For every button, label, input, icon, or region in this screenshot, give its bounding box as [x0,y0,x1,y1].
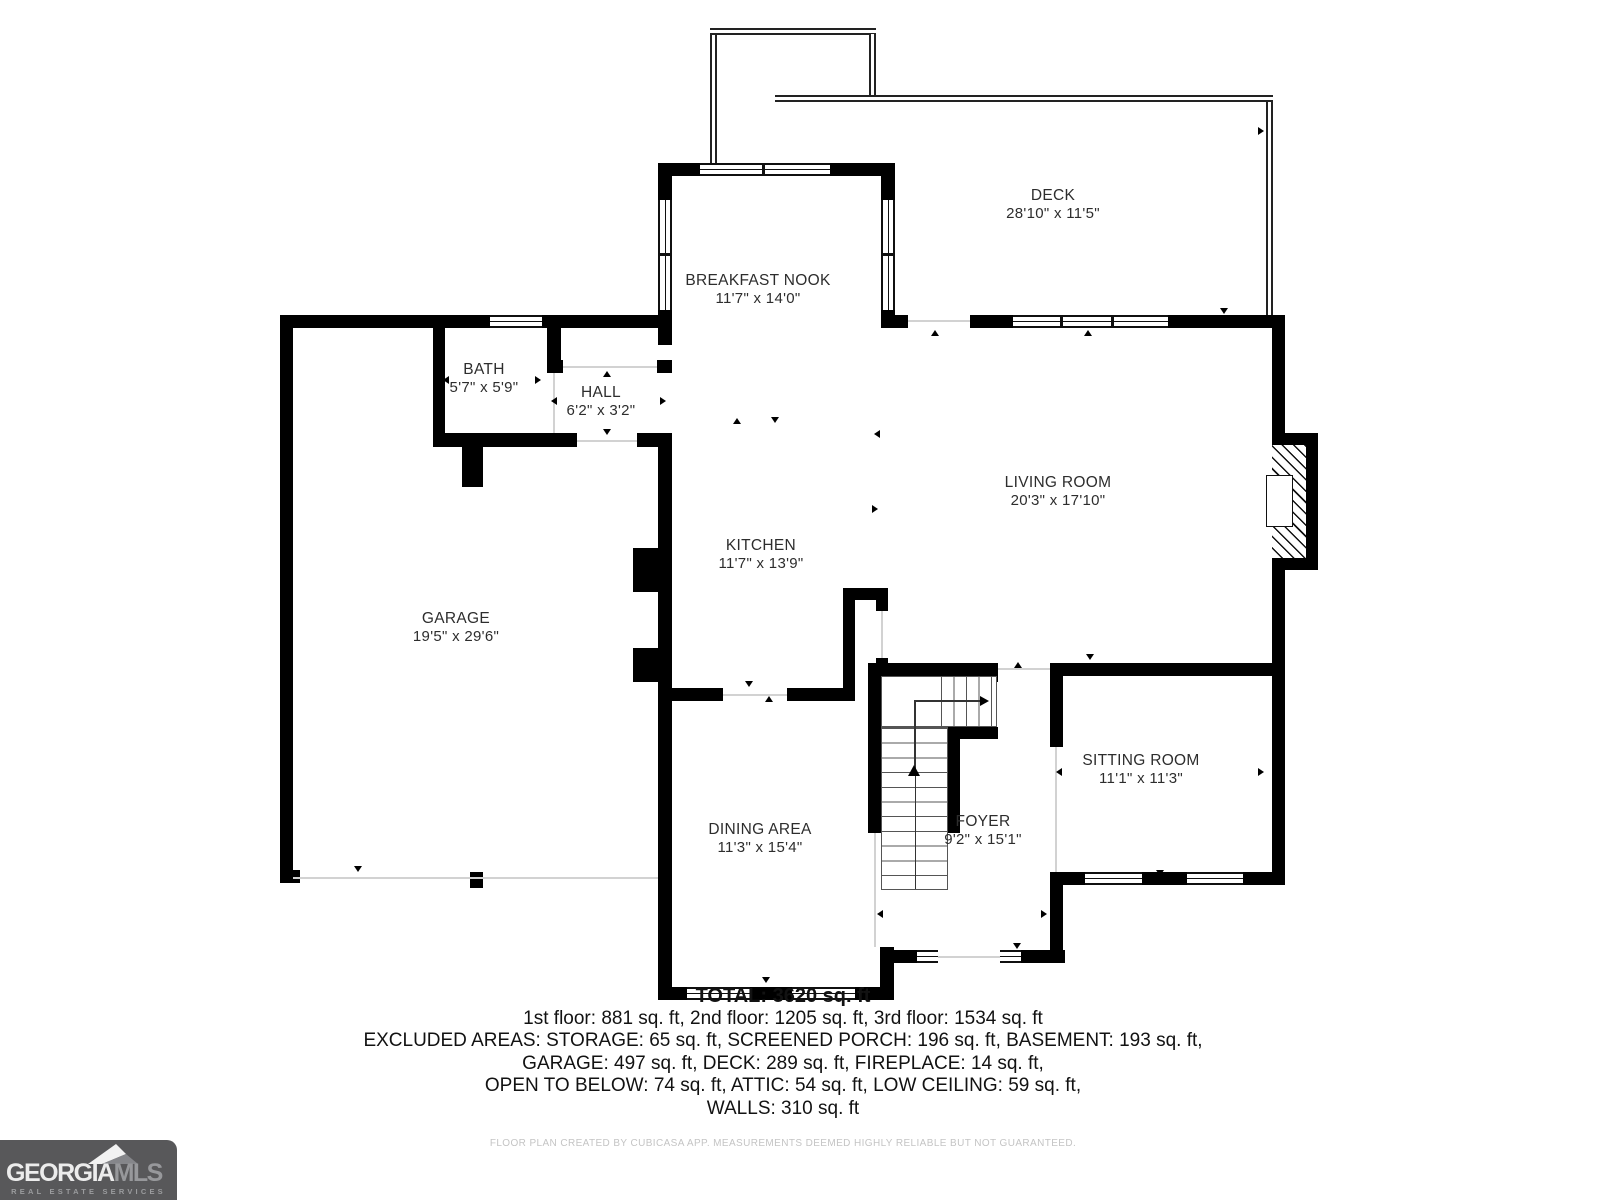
room-label-hall: HALL 6'2" x 3'2" [567,384,636,420]
room-label-living-room: LIVING ROOM 20'3" x 17'10" [1005,474,1112,510]
cased-opening [563,366,657,368]
window-mullion [1060,315,1063,328]
door-opening [577,440,637,442]
wall [1272,570,1285,676]
opening-marker [443,376,449,384]
room-name: SITTING ROOM [1082,752,1199,770]
total-area: TOTAL: 3620 sq. ft [0,984,1566,1008]
excluded-areas-line: OPEN TO BELOW: 74 sq. ft, ATTIC: 54 sq. … [0,1075,1566,1097]
georgia-mls-logo: GEORGIAMLS REAL ESTATE SERVICES [0,1140,177,1200]
cased-opening [874,833,876,947]
wall [280,315,672,328]
excluded-areas-line: GARAGE: 497 sq. ft, DECK: 289 sq. ft, FI… [0,1053,1566,1075]
opening-marker [283,675,289,683]
opening-marker [1014,662,1022,668]
window-mullion [1111,315,1114,328]
opening-marker [354,866,362,872]
room-dims: 20'3" x 17'10" [1005,492,1112,510]
utility-block [633,548,660,592]
room-name: LIVING ROOM [1005,474,1112,492]
room-dims: 11'7" x 14'0" [685,290,830,308]
wall [462,447,483,487]
cased-opening [998,668,1050,670]
room-dims: 9'2" x 15'1" [944,831,1022,849]
utility-block [633,648,660,682]
floor-areas: 1st floor: 881 sq. ft, 2nd floor: 1205 s… [0,1008,1566,1030]
opening-marker [762,977,770,983]
wall [868,663,998,676]
window-mullion [658,253,672,256]
window [1187,872,1243,885]
stair-direction-line [914,700,980,702]
excluded-areas-line: WALLS: 310 sq. ft [0,1098,1566,1120]
opening-marker [1155,666,1163,672]
opening-marker [771,417,779,423]
window [1085,872,1142,885]
opening-marker [874,430,880,438]
cased-opening [1055,747,1057,872]
room-dims: 5'7" x 5'9" [450,379,519,397]
room-dims: 11'3" x 15'4" [708,839,811,857]
opening-marker [1258,768,1264,776]
opening-marker [1056,768,1062,776]
wall [549,360,563,373]
opening-marker [603,429,611,435]
room-dims: 19'5" x 29'6" [413,628,499,646]
opening-marker [660,397,666,405]
wall [1272,328,1285,435]
fireplace-firebox [1266,475,1293,527]
logo-brand-primary: GEORGIA [6,1159,114,1187]
stair-arrow-icon [980,696,989,706]
room-name: DECK [1006,187,1100,205]
room-label-breakfast-nook: BREAKFAST NOOK 11'7" x 14'0" [685,272,830,308]
wall [843,588,855,700]
wall [1272,676,1285,883]
opening-marker [931,330,939,336]
room-label-foyer: FOYER 9'2" x 15'1" [944,813,1022,849]
opening-marker [1258,127,1264,135]
wall [470,872,483,888]
floor-plan: DECK 28'10" x 11'5" BREAKFAST NOOK 11'7"… [0,0,1600,1200]
deck-rail [775,95,1273,102]
room-label-sitting-room: SITTING ROOM 11'1" x 11'3" [1082,752,1199,788]
room-label-kitchen: KITCHEN 11'7" x 13'9" [718,537,803,573]
logo-tagline: REAL ESTATE SERVICES [0,1187,177,1196]
wall [881,315,908,328]
disclaimer-text: FLOOR PLAN CREATED BY CUBICASA APP. MEAS… [0,1138,1566,1149]
room-name: FOYER [944,813,1022,831]
opening-marker [765,696,773,702]
opening-marker [1041,910,1047,918]
room-label-dining-area: DINING AREA 11'3" x 15'4" [708,821,811,857]
wall [658,433,672,1000]
wall [657,360,672,373]
opening-marker [877,910,883,918]
sidelight-window [1000,950,1021,963]
room-label-garage: GARAGE 19'5" x 29'6" [413,610,499,646]
wall [433,433,577,447]
room-name: BREAKFAST NOOK [685,272,830,290]
door-opening [723,694,787,696]
room-dims: 11'1" x 11'3" [1082,770,1199,788]
opening-marker [603,371,611,377]
wall [876,588,888,611]
opening-marker [535,376,541,384]
wall [658,688,723,701]
garage-door-line [293,877,658,879]
deck-rail [869,34,876,95]
window-mullion [881,253,895,256]
opening-marker [1084,330,1092,336]
stair-treads [941,677,998,726]
opening-marker [1220,308,1228,314]
wall [868,663,881,833]
room-dims: 11'7" x 13'9" [718,555,803,573]
opening-marker [1086,654,1094,660]
wall [1050,676,1063,747]
deck-rail [710,28,717,163]
fireplace-wall [1306,433,1318,570]
window [700,163,830,176]
room-name: BATH [450,361,519,379]
room-dims: 6'2" x 3'2" [567,402,636,420]
window [490,315,542,328]
room-name: HALL [567,384,636,402]
room-name: KITCHEN [718,537,803,555]
logo-brand-secondary: MLS [114,1159,162,1187]
wall [637,433,672,447]
room-name: GARAGE [413,610,499,628]
wall [1050,663,1285,676]
window [1013,315,1168,328]
wall [280,315,293,883]
opening-marker [733,418,741,424]
opening-marker [357,322,365,328]
closet-door-opening [881,611,883,658]
opening-marker [1156,870,1164,876]
opening-marker [745,681,753,687]
wall [948,727,998,739]
room-name: DINING AREA [708,821,811,839]
area-summary: TOTAL: 3620 sq. ft 1st floor: 881 sq. ft… [0,984,1566,1120]
opening-marker [551,397,557,405]
opening-marker [658,820,664,828]
stair-direction-line [914,700,916,770]
door-opening [908,320,970,322]
deck-rail [710,28,876,35]
room-label-deck: DECK 28'10" x 11'5" [1006,187,1100,223]
excluded-areas-line: EXCLUDED AREAS: STORAGE: 65 sq. ft, SCRE… [0,1030,1566,1052]
deck-rail [1266,102,1273,318]
window-mullion [762,163,765,176]
room-label-bath: BATH 5'7" x 5'9" [450,361,519,397]
room-dims: 28'10" x 11'5" [1006,205,1100,223]
sidelight-window [917,950,938,963]
opening-marker [1013,943,1021,949]
logo-wordmark: GEORGIAMLS [6,1161,162,1186]
stair-arrow-icon [908,765,920,776]
front-door-opening [938,956,1000,958]
fireplace-wall [1272,558,1318,570]
opening-marker [872,505,878,513]
